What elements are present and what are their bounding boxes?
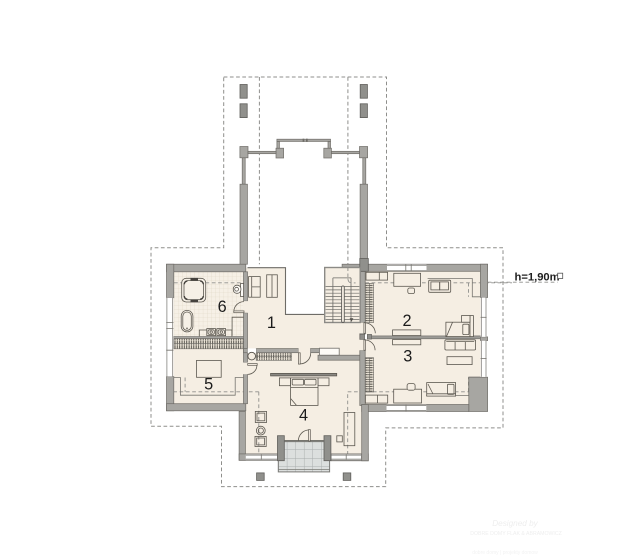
svg-text:4: 4 xyxy=(299,406,308,424)
svg-text:h=1,90m: h=1,90m xyxy=(515,271,560,283)
svg-text:dobre domy | projekty domow: dobre domy | projekty domow xyxy=(472,550,538,556)
svg-text:DOBRE DOMY FLAK & ABRAMOWICZ: DOBRE DOMY FLAK & ABRAMOWICZ xyxy=(470,531,562,537)
svg-text:6: 6 xyxy=(218,298,227,316)
svg-text:5: 5 xyxy=(204,376,213,394)
svg-text:3: 3 xyxy=(403,348,412,366)
svg-text:Designed by: Designed by xyxy=(492,519,538,528)
svg-text:2: 2 xyxy=(402,312,411,330)
svg-text:1: 1 xyxy=(267,314,276,332)
